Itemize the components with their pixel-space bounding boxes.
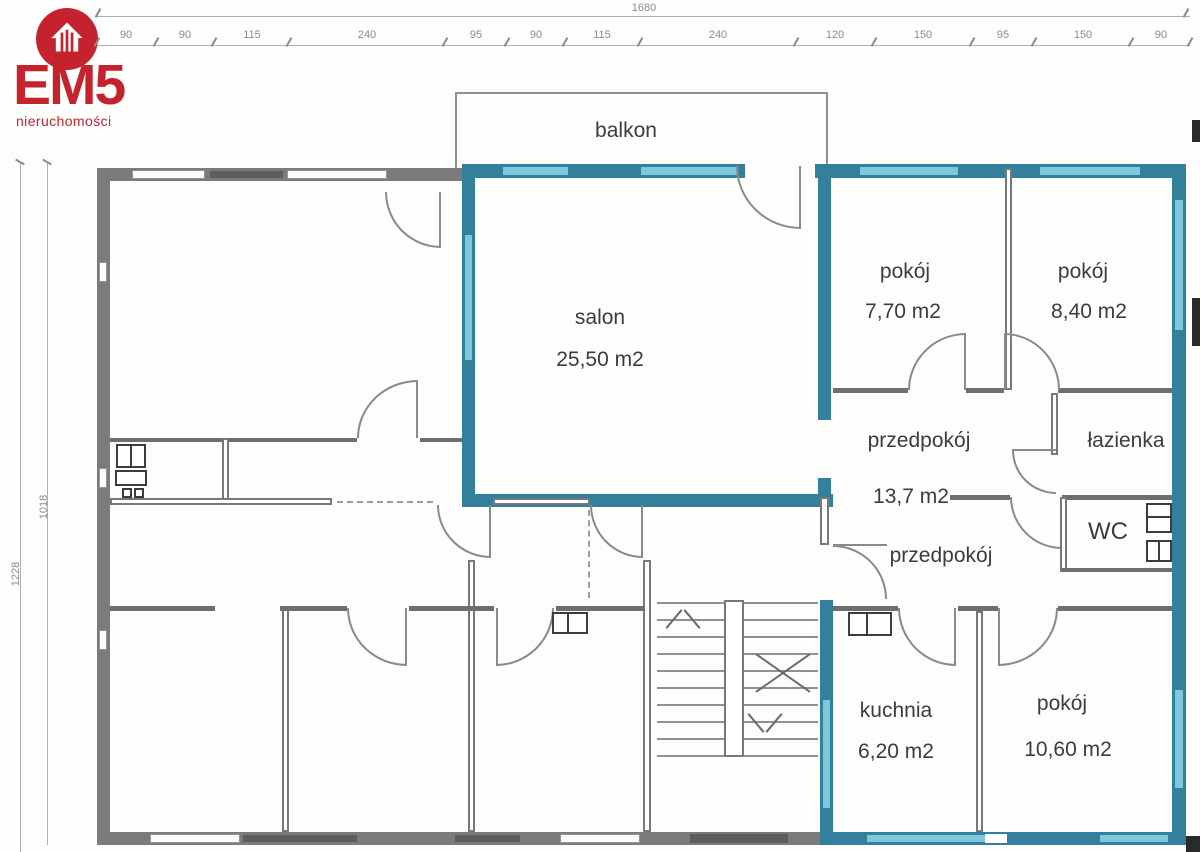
window [99,468,107,488]
dim-label-segment: 240 [358,29,376,41]
window [150,834,240,843]
wall-interior [643,560,651,832]
door-leaf [833,544,887,546]
room-label-salon: salon [575,306,625,330]
window [1175,690,1183,788]
door-leaf [489,505,491,558]
room-label-lazienka: łazienka [1087,429,1164,453]
corridor-dashed-line [588,510,590,598]
door-leaf [439,192,441,248]
window [641,167,737,175]
door-leaf [998,608,1000,666]
area-label-pokoj3: 10,60 m2 [1024,738,1112,762]
window [503,167,568,175]
window [860,167,958,175]
door-arc [590,505,643,558]
dim-label-segment: 90 [1155,29,1167,41]
door-arc [357,380,418,438]
wall-interior [1062,495,1172,500]
window [1040,167,1140,175]
door-leaf [496,608,498,666]
window [287,170,387,179]
door-leaf [1004,333,1006,390]
wall-interior [950,495,1010,500]
room-label-pokoj2: pokój [1058,260,1108,284]
wall-interior [1058,388,1172,393]
door-arc [1012,450,1056,494]
dim-label-total: 1680 [632,2,656,14]
door-arc [908,333,966,390]
wall-interior [110,498,332,505]
room-label-wc: WC [1088,518,1128,546]
wall-interior [110,438,357,442]
door-arc [385,192,441,248]
window [99,262,107,282]
window [99,630,107,650]
dim-label-segment: 90 [120,29,132,41]
area-label-przedpokoj: 13,7 m2 [873,485,949,509]
wall-interior [110,606,215,611]
dim-label-segment: 115 [243,29,261,41]
logo-title: EM5 [13,58,124,112]
fixture-icon [122,488,132,498]
dim-tick [1187,37,1194,47]
room-label-balkon: balkon [595,119,657,143]
wall-interior [976,611,983,832]
wall-interior [493,498,590,505]
dimension-line-left-outer [20,163,21,852]
wall-interior [222,438,229,502]
dim-label-segment: 90 [530,29,542,41]
dim-label-segment: 240 [709,29,727,41]
door-leaf [964,333,966,390]
dim-label-segment: 115 [593,29,611,41]
room-label-pokoj1: pokój [880,260,930,284]
room-label-przedpokoj: przedpokój [868,429,971,453]
window [455,835,520,842]
door-arc [1010,497,1062,549]
stove-icon [848,612,892,636]
window [560,834,640,843]
window [132,170,205,179]
door-leaf [799,166,801,229]
window [465,235,472,360]
door-leaf [954,608,956,666]
stair-stringer [724,600,744,757]
wall-interior [1051,393,1058,455]
room-label-kuchnia: kuchnia [860,699,932,723]
window [210,171,283,178]
stove-icon [552,612,588,634]
window [1100,835,1168,842]
wall-interior [280,606,347,611]
wall-interior [833,606,898,611]
wall-interior [420,438,462,442]
wall-interior [1062,568,1172,572]
washing-machine-icon [116,444,146,468]
entrance-door [690,834,788,843]
scan-artifact [1192,298,1200,346]
wall-interior [833,388,908,393]
scan-artifact [1186,836,1200,852]
area-label-pokoj1: 7,70 m2 [865,300,941,324]
wall-interior [556,606,645,611]
wall-stub-teal [818,478,831,494]
room-label-pokoj3: pokój [1037,692,1087,716]
fixture-icon [134,488,144,498]
door-arc [998,608,1058,666]
door-arc [496,608,554,666]
door-arc [833,545,887,599]
area-label-pokoj2: 8,40 m2 [1051,300,1127,324]
door-arc [437,505,491,558]
window [867,835,985,842]
window [243,835,357,842]
logo-subtitle: nieruchomości [16,113,111,129]
door-arc [736,166,801,229]
sink-icon [1146,540,1172,562]
window-frame [985,834,1007,843]
wall-interior [409,606,494,611]
dimension-line-segments [97,45,1190,46]
door-arc [898,608,956,666]
area-label-kuchnia: 6,20 m2 [858,740,934,764]
door-arc [347,608,407,666]
dim-label-segment: 95 [470,29,482,41]
wall-salon-right-teal [818,164,831,420]
dim-label-segment: 120 [826,29,844,41]
floor-plan: EM5 nieruchomości 1680 90 90 115 240 95 … [0,0,1200,852]
wall-interior [468,560,475,832]
door-leaf [405,608,407,666]
door-arc [1004,333,1060,390]
door-leaf [416,380,418,438]
wall-interior [820,497,829,545]
corridor-dashed-line [337,501,433,503]
wall-interior [282,608,289,832]
dim-label-segment: 150 [914,29,932,41]
dim-label-left-outer: 1228 [10,554,22,594]
dim-label-segment: 150 [1074,29,1092,41]
dimension-line-total [97,16,1190,17]
window [823,700,830,808]
wall-interior [1058,606,1172,611]
wall-interior [966,388,1004,393]
room-label-przedpokoj2: przedpokój [890,544,993,568]
door-leaf [641,505,643,558]
toilet-icon [1146,503,1172,533]
dim-label-left-inner: 1018 [38,487,50,527]
door-leaf [1012,449,1056,451]
dim-label-segment: 95 [997,29,1009,41]
dim-label-segment: 90 [179,29,191,41]
sink-icon [115,470,147,486]
window [1175,200,1183,330]
area-label-salon: 25,50 m2 [556,348,644,372]
wall-interior [1060,497,1067,572]
scan-artifact [1192,120,1200,142]
